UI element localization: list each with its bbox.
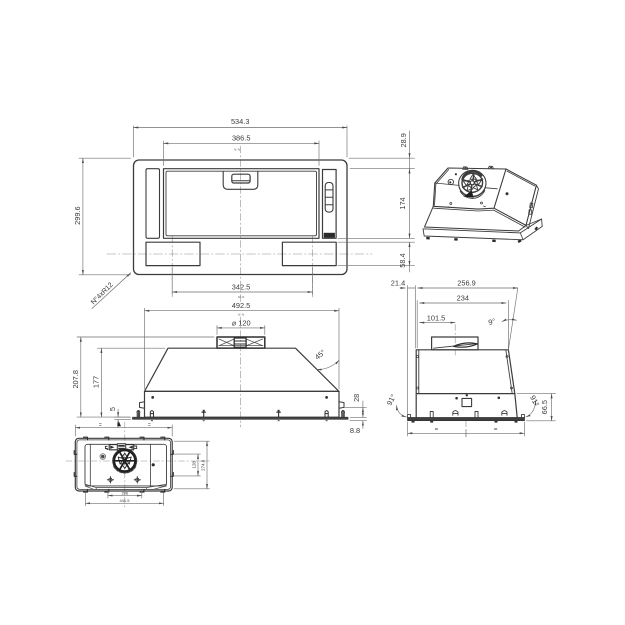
svg-text:207.8: 207.8 <box>71 370 80 389</box>
svg-text:8.8: 8.8 <box>350 426 360 435</box>
svg-text:66.5: 66.5 <box>540 400 549 414</box>
svg-text:128: 128 <box>192 461 197 469</box>
svg-text:=: = <box>494 427 498 433</box>
svg-text:45°: 45° <box>313 348 327 362</box>
svg-text:534.3: 534.3 <box>231 117 250 126</box>
svg-text:⌀ 120: ⌀ 120 <box>232 318 251 327</box>
svg-text:177: 177 <box>92 376 101 388</box>
svg-text:=: = <box>148 423 151 429</box>
svg-text:58.4: 58.4 <box>398 253 407 267</box>
svg-text:492.5: 492.5 <box>232 301 251 310</box>
svg-text:386.5: 386.5 <box>232 134 251 143</box>
svg-text:=: = <box>99 423 102 429</box>
svg-text:9°: 9° <box>487 317 496 328</box>
svg-text:28.9: 28.9 <box>399 133 408 147</box>
svg-text:274.8: 274.8 <box>201 459 206 471</box>
svg-text:≈ ≈: ≈ ≈ <box>234 147 241 152</box>
svg-text:101.5: 101.5 <box>427 313 446 322</box>
svg-text:342.5: 342.5 <box>232 282 251 291</box>
svg-text:21.4: 21.4 <box>391 279 405 288</box>
svg-text:296: 296 <box>121 490 128 495</box>
svg-text:≈ ≈: ≈ ≈ <box>238 312 245 317</box>
svg-text:28: 28 <box>352 394 361 402</box>
svg-text:234: 234 <box>457 294 469 303</box>
svg-text:256.9: 256.9 <box>457 279 476 288</box>
svg-text:=: = <box>435 427 439 433</box>
svg-text:299.6: 299.6 <box>73 206 82 225</box>
svg-text:441.5: 441.5 <box>119 498 130 503</box>
svg-text:91°: 91° <box>385 393 398 407</box>
svg-text:5: 5 <box>108 407 117 411</box>
svg-text:≈ ≈: ≈ ≈ <box>238 295 245 300</box>
svg-text:174: 174 <box>398 197 407 209</box>
svg-text:N°4xR12: N°4xR12 <box>89 281 115 307</box>
